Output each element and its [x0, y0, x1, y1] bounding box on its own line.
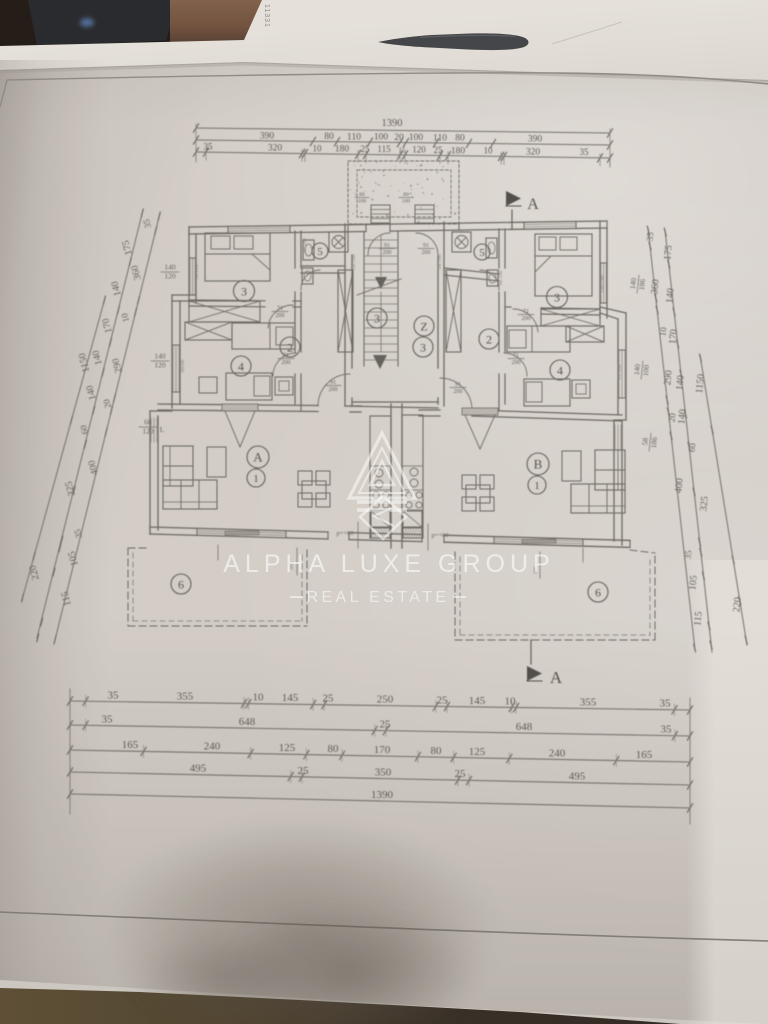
svg-text:REAL ESTATE: REAL ESTATE — [307, 589, 450, 606]
svg-text:ALPHA LUXE GROUP: ALPHA LUXE GROUP — [223, 550, 554, 578]
